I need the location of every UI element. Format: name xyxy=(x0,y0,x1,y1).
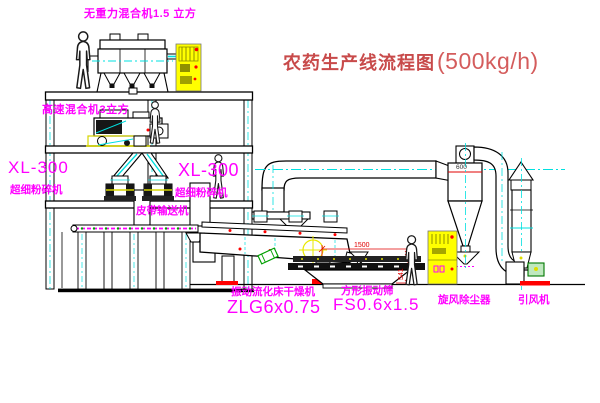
label-belt-conveyor: 皮带输送机 xyxy=(136,206,189,217)
label-dryer-name: 振动流化床干燥机 xyxy=(231,287,315,298)
y-chute-drawing xyxy=(112,153,168,178)
induced-draft-fan-drawing xyxy=(506,262,550,286)
dimension-screen-height: 541 xyxy=(398,268,405,280)
cyclone-diameter-note: 600 xyxy=(456,165,467,172)
label-gravity-mixer: 无重力混合机1.5 立方 xyxy=(84,9,196,20)
cad-flow-diagram: 农药生产线流程图 (500kg/h) 无重力混合机1.5 立方 高速混合机3立方… xyxy=(0,0,600,403)
dimension-screen-length: 1500 xyxy=(354,242,370,249)
title-text: 农药生产线流程图 xyxy=(283,49,435,75)
control-cabinet-right xyxy=(428,231,457,284)
label-fan: 引风机 xyxy=(518,295,550,306)
gravity-mixer-drawing xyxy=(88,34,181,94)
label-machine-left: 超细粉碎机 xyxy=(10,185,63,196)
drawing-title: 农药生产线流程图 (500kg/h) xyxy=(283,48,539,75)
worker-figure xyxy=(406,236,418,285)
label-dryer-model: ZLG6x0.75 xyxy=(227,298,321,316)
label-cyclone: 旋风除尘器 xyxy=(438,295,491,306)
label-screen-model: FS0.6x1.5 xyxy=(333,296,420,313)
indicator-light xyxy=(195,48,199,52)
label-model-center: XL-300 xyxy=(178,161,239,179)
label-model-left: XL-300 xyxy=(8,159,69,176)
indicator-light xyxy=(450,235,453,238)
title-capacity: (500kg/h) xyxy=(437,48,539,75)
worker-figure xyxy=(76,32,89,88)
belt-conveyor-drawing xyxy=(71,225,198,289)
label-machine-center: 超细粉碎机 xyxy=(175,188,228,199)
fan-base xyxy=(520,281,550,286)
label-high-speed-mixer: 高速混合机3立方 xyxy=(42,105,129,116)
control-cabinet-top xyxy=(176,44,201,91)
